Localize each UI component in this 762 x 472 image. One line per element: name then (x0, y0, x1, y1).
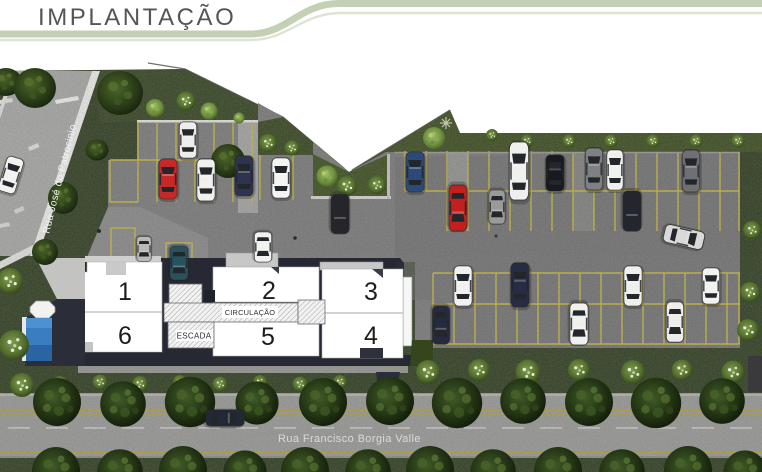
svg-text:CIRCULAÇÃO: CIRCULAÇÃO (225, 308, 276, 317)
svg-text:ESCADA: ESCADA (177, 332, 212, 341)
svg-text:5: 5 (261, 323, 275, 351)
svg-text:6: 6 (118, 322, 132, 350)
svg-text:2: 2 (262, 277, 276, 305)
svg-text:4: 4 (364, 322, 378, 350)
svg-text:IMPLANTAÇÃO: IMPLANTAÇÃO (38, 4, 236, 31)
svg-text:1: 1 (118, 278, 132, 306)
svg-text:3: 3 (364, 278, 378, 306)
